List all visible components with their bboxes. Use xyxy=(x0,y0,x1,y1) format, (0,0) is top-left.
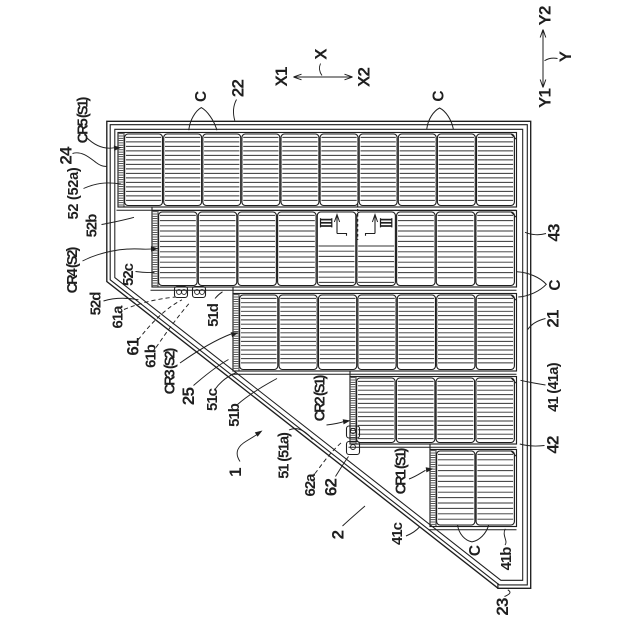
svg-text:X: X xyxy=(312,48,331,60)
svg-text:C: C xyxy=(547,279,564,290)
svg-text:61b: 61b xyxy=(143,344,160,368)
svg-text:61: 61 xyxy=(124,338,143,356)
svg-text:Y1: Y1 xyxy=(536,89,555,108)
svg-text:CR2 (S1): CR2 (S1) xyxy=(313,374,329,421)
svg-text:41b: 41b xyxy=(498,547,515,571)
svg-text:24: 24 xyxy=(57,146,76,165)
svg-text:62: 62 xyxy=(322,479,341,497)
svg-text:52c: 52c xyxy=(120,263,137,286)
svg-text:52d: 52d xyxy=(88,292,105,316)
svg-text:C: C xyxy=(467,545,484,556)
svg-text:22: 22 xyxy=(229,80,248,98)
svg-text:X1: X1 xyxy=(272,67,291,86)
svg-text:C: C xyxy=(431,90,448,101)
svg-text:25: 25 xyxy=(179,388,198,406)
svg-text:CR3 (S2): CR3 (S2) xyxy=(163,347,179,394)
svg-text:51 (51a): 51 (51a) xyxy=(277,432,293,479)
svg-text:CR5 (S1): CR5 (S1) xyxy=(76,96,92,143)
svg-text:51d: 51d xyxy=(205,303,222,327)
svg-text:23: 23 xyxy=(493,598,512,616)
svg-text:51c: 51c xyxy=(204,388,221,411)
svg-text:52b: 52b xyxy=(84,214,101,238)
svg-text:Y: Y xyxy=(556,50,575,62)
svg-text:62a: 62a xyxy=(302,473,319,497)
svg-text:43: 43 xyxy=(545,224,564,242)
svg-text:CR1 (S1): CR1 (S1) xyxy=(394,447,410,494)
svg-text:42: 42 xyxy=(544,436,563,454)
svg-text:1: 1 xyxy=(226,468,245,477)
svg-text:51b: 51b xyxy=(226,403,243,427)
svg-text:Y2: Y2 xyxy=(536,6,555,25)
svg-text:2: 2 xyxy=(329,530,348,539)
svg-text:X2: X2 xyxy=(355,68,374,87)
svg-text:21: 21 xyxy=(544,310,563,328)
svg-text:52 (52a): 52 (52a) xyxy=(66,167,82,219)
svg-text:C: C xyxy=(193,91,210,102)
svg-text:41 (41a): 41 (41a) xyxy=(546,362,562,412)
svg-text:61a: 61a xyxy=(110,305,127,329)
svg-text:41c: 41c xyxy=(389,522,406,545)
svg-text:CR4 (S2): CR4 (S2) xyxy=(65,246,81,293)
